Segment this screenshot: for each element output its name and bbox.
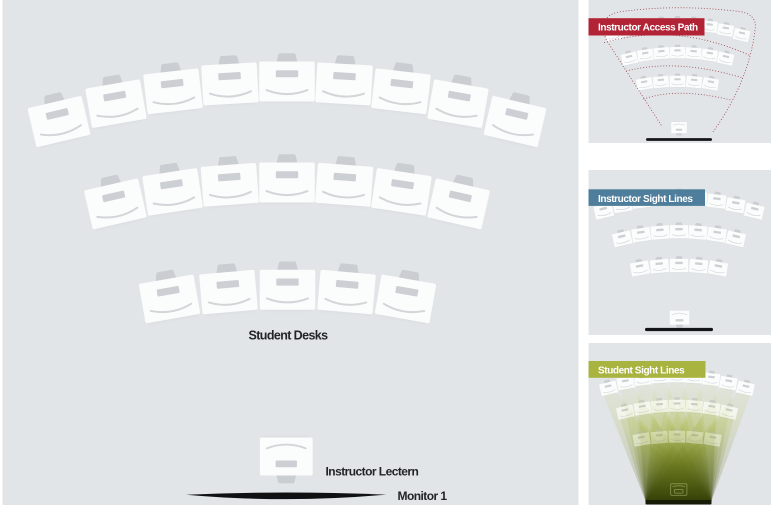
svg-text:Instructor Access Path: Instructor Access Path [598, 23, 698, 34]
svg-text:Student Desks: Student Desks [248, 329, 328, 343]
svg-text:Monitor 1: Monitor 1 [398, 489, 448, 503]
svg-text:Instructor Lectern: Instructor Lectern [326, 465, 419, 479]
svg-text:Instructor Sight Lines: Instructor Sight Lines [598, 194, 693, 205]
svg-text:Student Sight Lines: Student Sight Lines [598, 365, 685, 376]
